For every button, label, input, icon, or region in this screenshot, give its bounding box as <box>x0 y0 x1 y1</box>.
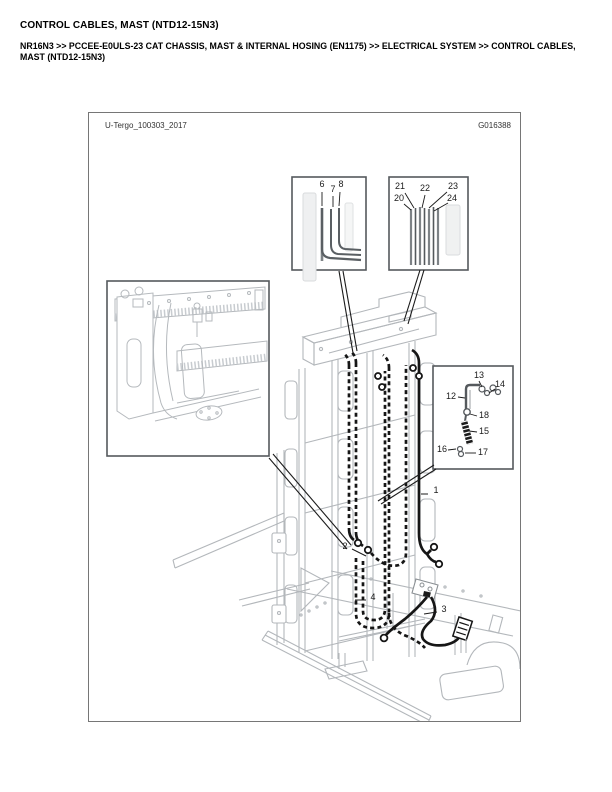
callout-4: 4 <box>364 592 382 603</box>
parts-catalog-page: { "page": { "title": "CONTROL CABLES, MA… <box>0 0 612 792</box>
callout-20: 20 <box>390 193 408 204</box>
callout-17: 17 <box>474 447 492 458</box>
technical-drawing <box>89 113 520 721</box>
cable-3-assembly <box>381 579 473 653</box>
callout-24: 24 <box>443 193 461 204</box>
callout-8: 8 <box>332 179 350 190</box>
page-title: CONTROL CABLES, MAST (NTD12-15N3) <box>20 20 219 31</box>
callout-16: 16 <box>433 444 451 455</box>
callout-22: 22 <box>416 183 434 194</box>
callout-13: 13 <box>470 370 488 381</box>
mast-structure <box>285 341 435 679</box>
callout-2: 2 <box>336 541 354 552</box>
callout-15: 15 <box>475 426 493 437</box>
callout-21: 21 <box>391 181 409 192</box>
cable-runs-dashed <box>343 351 425 648</box>
inset-carriage-detail <box>107 281 269 456</box>
callout-23: 23 <box>444 181 462 192</box>
callout-18: 18 <box>475 410 493 421</box>
callout-1: 1 <box>427 485 445 496</box>
callout-14: 14 <box>491 379 509 390</box>
callout-3: 3 <box>435 604 453 615</box>
figure-panel: U-Tergo_100303_2017 G016388 <box>88 112 521 722</box>
callout-12: 12 <box>442 391 460 402</box>
chassis <box>262 568 520 721</box>
breadcrumb: NR16N3 >> PCCEE-E0ULS-23 CAT CHASSIS, MA… <box>20 41 596 63</box>
